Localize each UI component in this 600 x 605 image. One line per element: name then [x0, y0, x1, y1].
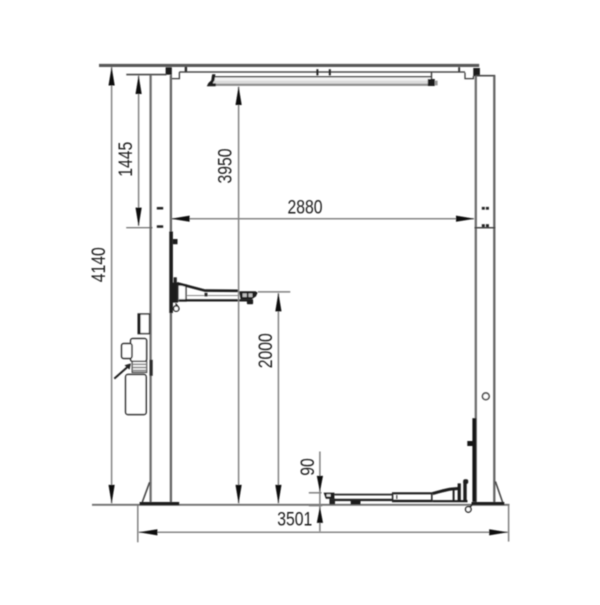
svg-text:3950: 3950: [214, 148, 236, 183]
svg-text:1445: 1445: [114, 141, 136, 176]
svg-text:3501: 3501: [277, 508, 312, 530]
svg-text:4140: 4140: [87, 247, 109, 282]
svg-text:90: 90: [296, 458, 318, 476]
svg-text:2880: 2880: [287, 196, 322, 218]
svg-text:2000: 2000: [255, 333, 277, 368]
